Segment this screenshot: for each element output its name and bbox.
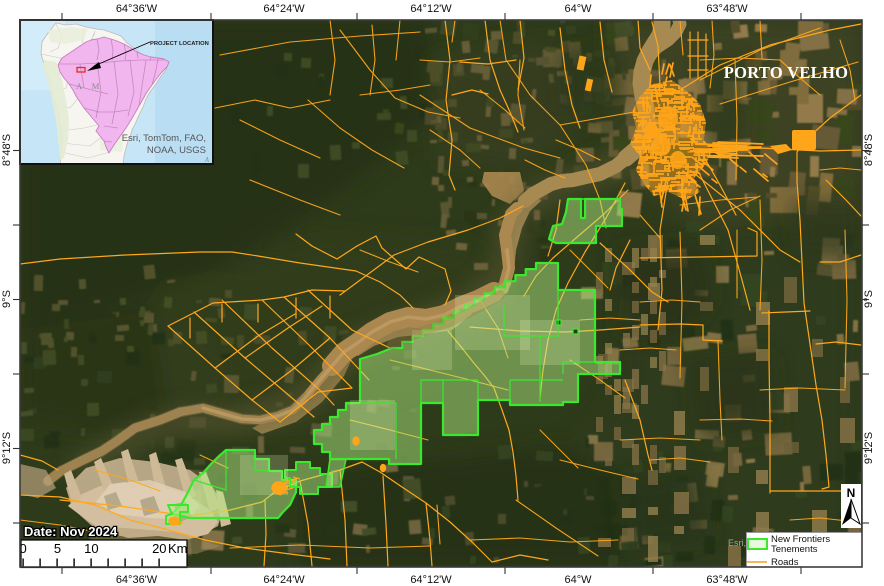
svg-text:64°12'W: 64°12'W: [410, 3, 452, 15]
svg-text:64°W: 64°W: [564, 574, 592, 586]
svg-text:N: N: [847, 486, 856, 500]
svg-text:9°12'S: 9°12'S: [863, 432, 875, 464]
svg-text:8°48'S: 8°48'S: [863, 134, 875, 166]
svg-text:64°24'W: 64°24'W: [263, 3, 305, 15]
svg-text:A: A: [204, 156, 210, 164]
svg-text:10: 10: [84, 541, 98, 556]
svg-text:PROJECT LOCATION: PROJECT LOCATION: [150, 41, 209, 47]
svg-text:A M: A M: [76, 81, 103, 91]
svg-text:64°W: 64°W: [564, 3, 592, 15]
svg-text:Km: Km: [168, 541, 188, 556]
svg-text:Date: Nov 2024: Date: Nov 2024: [24, 524, 118, 539]
svg-text:63°48'W: 63°48'W: [706, 3, 748, 15]
svg-text:64°36'W: 64°36'W: [116, 3, 158, 15]
svg-text:63°48'W: 63°48'W: [706, 574, 748, 586]
svg-text:64°36'W: 64°36'W: [116, 574, 158, 586]
svg-text:64°24'W: 64°24'W: [263, 574, 305, 586]
svg-text:9°12'S: 9°12'S: [1, 432, 13, 464]
svg-text:Tenements: Tenements: [771, 544, 818, 555]
svg-text:8°48'S: 8°48'S: [1, 134, 13, 166]
svg-text:Esri, TomTom, FAO,: Esri, TomTom, FAO,: [122, 133, 206, 144]
svg-text:Esri,: Esri,: [728, 538, 746, 548]
svg-text:20: 20: [152, 541, 166, 556]
svg-text:5: 5: [54, 541, 61, 556]
svg-text:64°12'W: 64°12'W: [410, 574, 452, 586]
svg-text:PORTO VELHO: PORTO VELHO: [724, 63, 849, 82]
svg-text:NOAA, USGS: NOAA, USGS: [147, 145, 206, 156]
svg-text:9°S: 9°S: [863, 290, 875, 308]
svg-text:9°S: 9°S: [1, 290, 13, 308]
